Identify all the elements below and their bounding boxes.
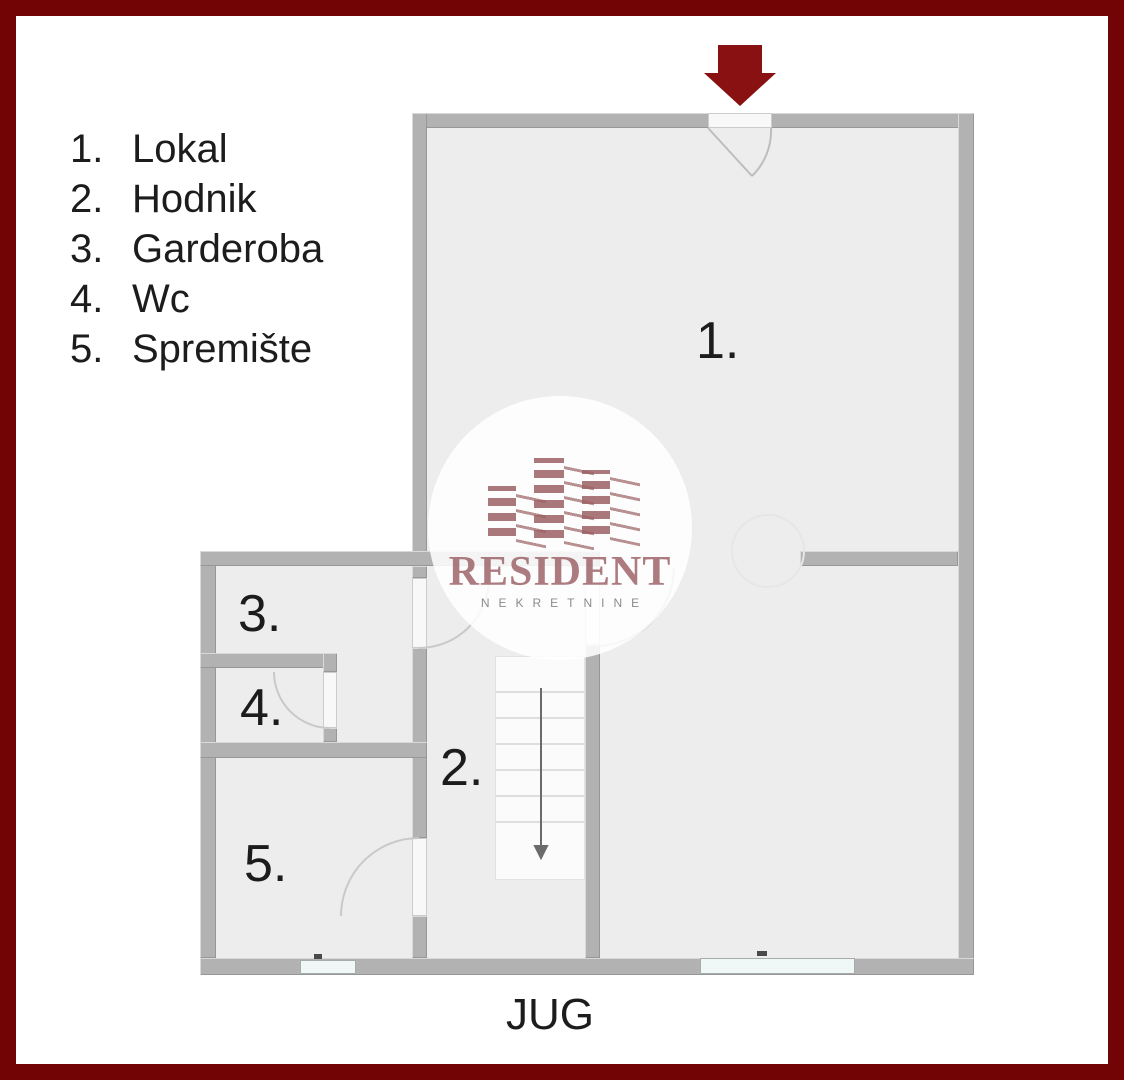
legend-label: Lokal <box>132 124 228 174</box>
wall-room4-right-lower <box>323 728 337 742</box>
legend-item-lokal: 1. Lokal <box>70 124 323 174</box>
watermark-subtitle-text: NEKRETNINE <box>428 596 692 610</box>
room-4-label: 4. <box>240 682 283 734</box>
legend-item-wc: 4. Wc <box>70 274 323 324</box>
entrance-door <box>708 113 772 128</box>
room-1-label: 1. <box>696 315 739 367</box>
wall-room3-room4-divider <box>200 653 337 668</box>
legend-number: 2. <box>70 174 132 224</box>
legend-item-garderoba: 3. Garderoba <box>70 224 323 274</box>
legend-number: 3. <box>70 224 132 274</box>
legend-item-hodnik: 2. Hodnik <box>70 174 323 224</box>
building-tower-left <box>488 486 516 536</box>
wall-room4-room5-divider <box>200 742 427 758</box>
wall-hall-left-lower <box>412 916 427 958</box>
room-2-label: 2. <box>440 742 483 794</box>
window-room1 <box>700 958 855 974</box>
wall-left-main <box>412 113 427 566</box>
window-room5-mark <box>314 954 322 959</box>
legend: 1. Lokal 2. Hodnik 3. Garderoba 4. Wc 5.… <box>70 124 323 374</box>
watermark-brand-text: RESIDENT <box>428 548 692 596</box>
wall-room4-right-upper <box>323 653 337 672</box>
agency-watermark: RESIDENT NEKRETNINE <box>428 396 692 660</box>
wall-partition-stub <box>800 551 958 566</box>
door-hall-to-room5 <box>412 838 427 916</box>
legend-label: Spremište <box>132 324 312 374</box>
window-room1-mark <box>757 951 767 956</box>
staircase <box>495 656 585 880</box>
wall-hall-right <box>585 645 600 958</box>
door-hall-to-room3 <box>412 578 427 648</box>
legend-label: Wc <box>132 274 190 324</box>
wall-hall-left-upper <box>412 566 427 578</box>
legend-item-spremiste: 5. Spremište <box>70 324 323 374</box>
legend-label: Hodnik <box>132 174 257 224</box>
building-tower-middle <box>534 458 564 538</box>
window-room5 <box>300 960 356 974</box>
buildings-logo-icon <box>486 460 646 544</box>
legend-number: 5. <box>70 324 132 374</box>
legend-number: 4. <box>70 274 132 324</box>
room-3-label: 3. <box>238 588 281 640</box>
building-tower-right <box>582 470 610 534</box>
legend-number: 1. <box>70 124 132 174</box>
stair-treads <box>496 667 584 847</box>
orientation-label-jug: JUG <box>480 990 620 1040</box>
door-to-room4 <box>323 672 337 728</box>
wall-top <box>412 113 974 128</box>
legend-label: Garderoba <box>132 224 323 274</box>
floorplan-page: { "colors": { "frame": "#730405", "arrow… <box>0 0 1124 1080</box>
wall-right <box>958 113 974 975</box>
entrance-arrow-icon <box>704 45 776 106</box>
room-5-label: 5. <box>244 838 287 890</box>
